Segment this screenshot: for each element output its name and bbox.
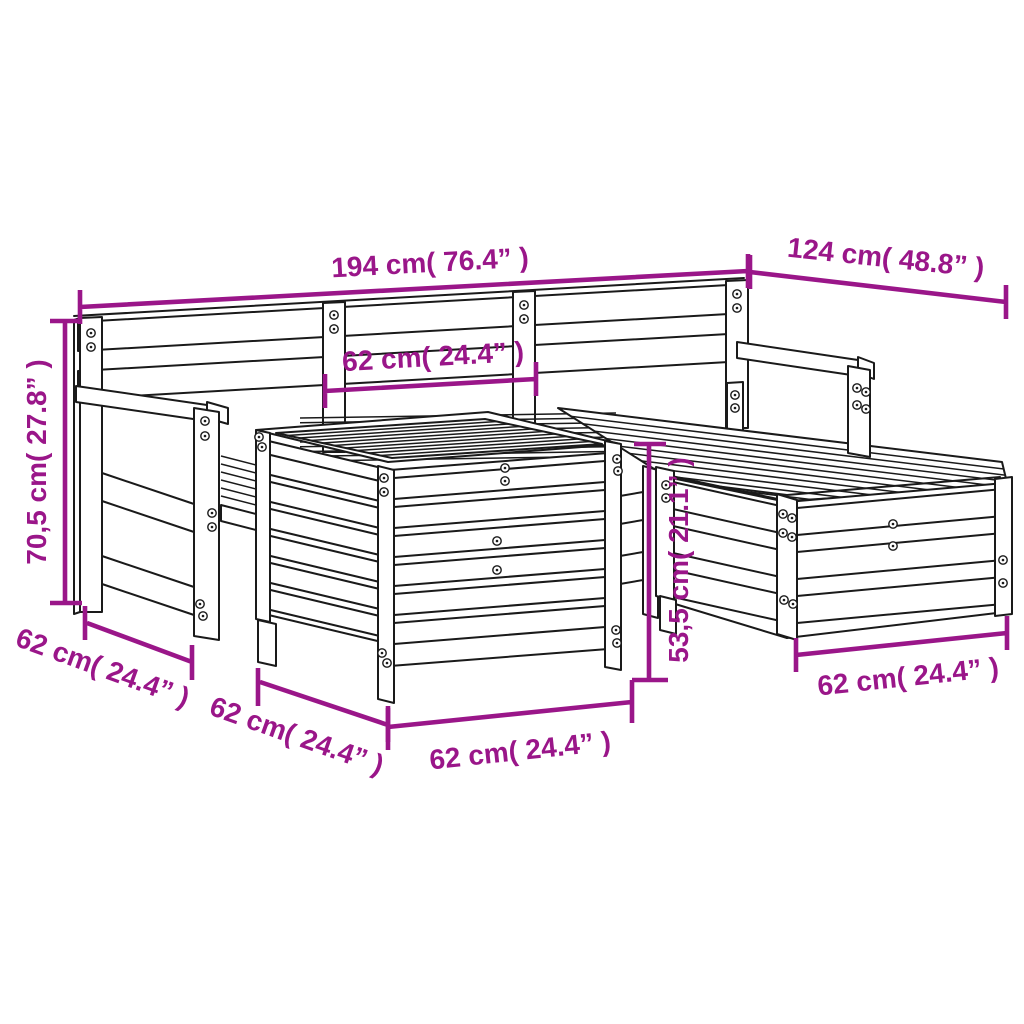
dim-label-armchair-seat-depth: 62 cm( 24.4” ): [12, 622, 194, 713]
dim-label-overall-width: 194 cm( 76.4” ): [330, 242, 529, 284]
dim-label-footstool-width: 62 cm( 24.4” ): [816, 652, 1000, 702]
dim-label-table-front-width: 62 cm( 24.4” ): [428, 726, 612, 776]
left-armchair-seat-front-board: [221, 505, 256, 530]
left-armchair-seat-slats: [221, 456, 256, 505]
dim-overall-depth: 124 cm( 48.8” ): [750, 232, 1006, 319]
dim-overall-height: 70,5 cm( 27.8” ): [21, 321, 82, 603]
table-left-leg: [258, 620, 276, 666]
footstool-right-boards: [797, 489, 1003, 623]
right-armchair-side-rail-bottom: [620, 552, 643, 584]
right-armchair-side-rail-top: [620, 492, 643, 524]
garden-sofa-set-line-drawing: 194 cm( 76.4” ) 124 cm( 48.8” ) 62 cm( 2…: [0, 0, 1024, 1024]
footstool-right-post: [995, 477, 1012, 616]
coffee-table-ottoman: [256, 412, 621, 703]
dim-label-overall-height: 70,5 cm( 27.8” ): [21, 359, 52, 564]
dim-label-table-side-depth: 62 cm( 24.4” ): [206, 690, 388, 780]
right-armrest-board: [737, 342, 858, 376]
right-armchair-side: [620, 466, 658, 618]
dim-armchair-seat-depth: 62 cm( 24.4” ): [12, 606, 194, 713]
left-armchair-rail-bottom: [102, 556, 194, 615]
dim-label-seat-height: 53,5 cm( 21.1” ): [663, 457, 694, 662]
left-armchair-rail-top: [102, 473, 194, 532]
dim-label-overall-depth: 124 cm( 48.8” ): [786, 232, 986, 283]
dim-table-side-depth: 62 cm( 24.4” ): [206, 668, 388, 780]
dim-table-front-width: 62 cm( 24.4” ): [388, 680, 632, 775]
backrest-left-post: [80, 317, 102, 612]
dimension-diagram: 194 cm( 76.4” ) 124 cm( 48.8” ) 62 cm( 2…: [0, 0, 1024, 1024]
table-left-corner-post: [256, 430, 270, 622]
